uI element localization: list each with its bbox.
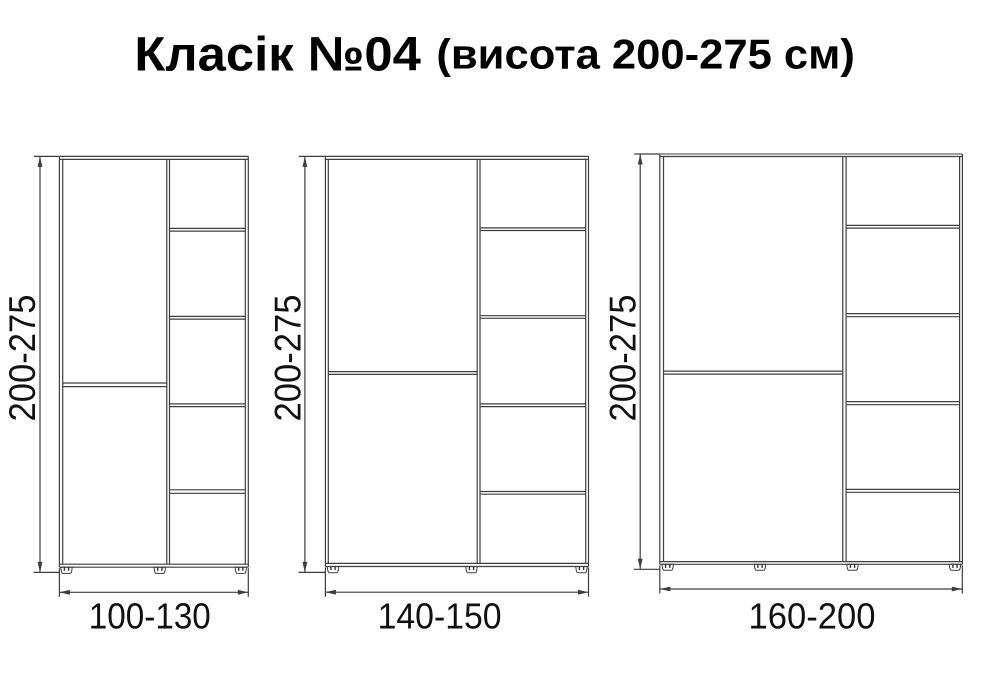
svg-text:200-275: 200-275 xyxy=(602,295,643,422)
svg-text:Класік №04: Класік №04 xyxy=(134,27,421,81)
svg-text:(висота 200-275 см): (висота 200-275 см) xyxy=(436,31,855,78)
svg-text:200-275: 200-275 xyxy=(2,295,43,422)
svg-text:160-200: 160-200 xyxy=(749,596,876,637)
svg-text:100-130: 100-130 xyxy=(89,596,211,637)
svg-text:140-150: 140-150 xyxy=(378,596,502,637)
svg-text:200-275: 200-275 xyxy=(267,295,308,422)
